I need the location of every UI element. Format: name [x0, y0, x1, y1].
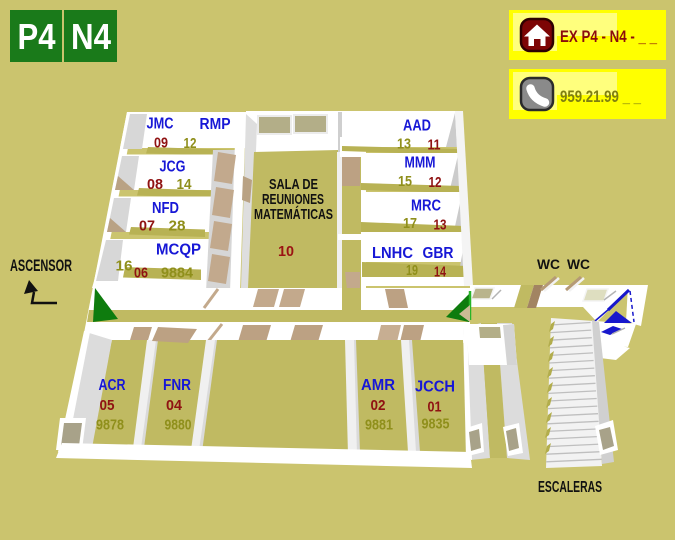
svg-text:08: 08: [147, 176, 163, 193]
svg-text:10: 10: [278, 243, 294, 260]
svg-text:FNR: FNR: [163, 377, 191, 394]
svg-text:13: 13: [397, 136, 411, 153]
svg-text:LNHC: LNHC: [372, 245, 413, 262]
svg-text:9835: 9835: [422, 416, 450, 433]
svg-text:GBR: GBR: [423, 245, 454, 262]
svg-text:959.21.99 _ _: 959.21.99 _ _: [560, 87, 641, 106]
svg-text:P4: P4: [18, 16, 56, 57]
svg-text:ESCALERAS: ESCALERAS: [538, 479, 602, 496]
svg-text:19: 19: [406, 262, 418, 279]
svg-text:16: 16: [116, 258, 133, 275]
svg-text:MRC: MRC: [411, 198, 441, 215]
svg-text:15: 15: [398, 173, 412, 190]
svg-text:9878: 9878: [96, 417, 124, 434]
svg-text:NFD: NFD: [152, 200, 179, 217]
svg-text:12: 12: [429, 174, 442, 191]
svg-text:06: 06: [134, 265, 148, 282]
svg-text:AMR: AMR: [361, 377, 395, 394]
svg-text:13: 13: [434, 217, 447, 234]
svg-text:07: 07: [139, 218, 155, 235]
svg-text:JCG: JCG: [160, 159, 186, 176]
svg-text:RMP: RMP: [200, 116, 231, 133]
svg-text:MCQP: MCQP: [156, 242, 201, 259]
svg-text:01: 01: [428, 399, 442, 416]
svg-text:9880: 9880: [165, 417, 192, 434]
svg-text:17: 17: [403, 215, 417, 232]
svg-text:28: 28: [169, 218, 186, 235]
svg-text:AAD: AAD: [403, 118, 431, 135]
svg-text:11: 11: [428, 137, 441, 154]
svg-text:05: 05: [100, 397, 115, 414]
svg-text:JMC: JMC: [147, 116, 174, 133]
svg-text:MATEMÁTICAS: MATEMÁTICAS: [254, 206, 333, 223]
svg-text:02: 02: [371, 397, 386, 414]
svg-text:WC: WC: [537, 256, 560, 272]
svg-text:14: 14: [177, 176, 193, 193]
svg-text:ACR: ACR: [99, 377, 126, 394]
svg-text:12: 12: [184, 135, 197, 152]
svg-text:N4: N4: [71, 16, 111, 57]
svg-text:WC: WC: [567, 256, 590, 272]
svg-text:MMM: MMM: [405, 155, 436, 172]
svg-text:ASCENSOR: ASCENSOR: [10, 256, 72, 275]
svg-text:9884: 9884: [161, 265, 194, 282]
svg-text:EX P4 - N4 - _ _: EX P4 - N4 - _ _: [560, 27, 657, 46]
svg-text:04: 04: [166, 397, 183, 414]
svg-text:JCCH: JCCH: [415, 379, 455, 396]
svg-text:9881: 9881: [365, 417, 393, 434]
svg-text:09: 09: [154, 135, 168, 152]
